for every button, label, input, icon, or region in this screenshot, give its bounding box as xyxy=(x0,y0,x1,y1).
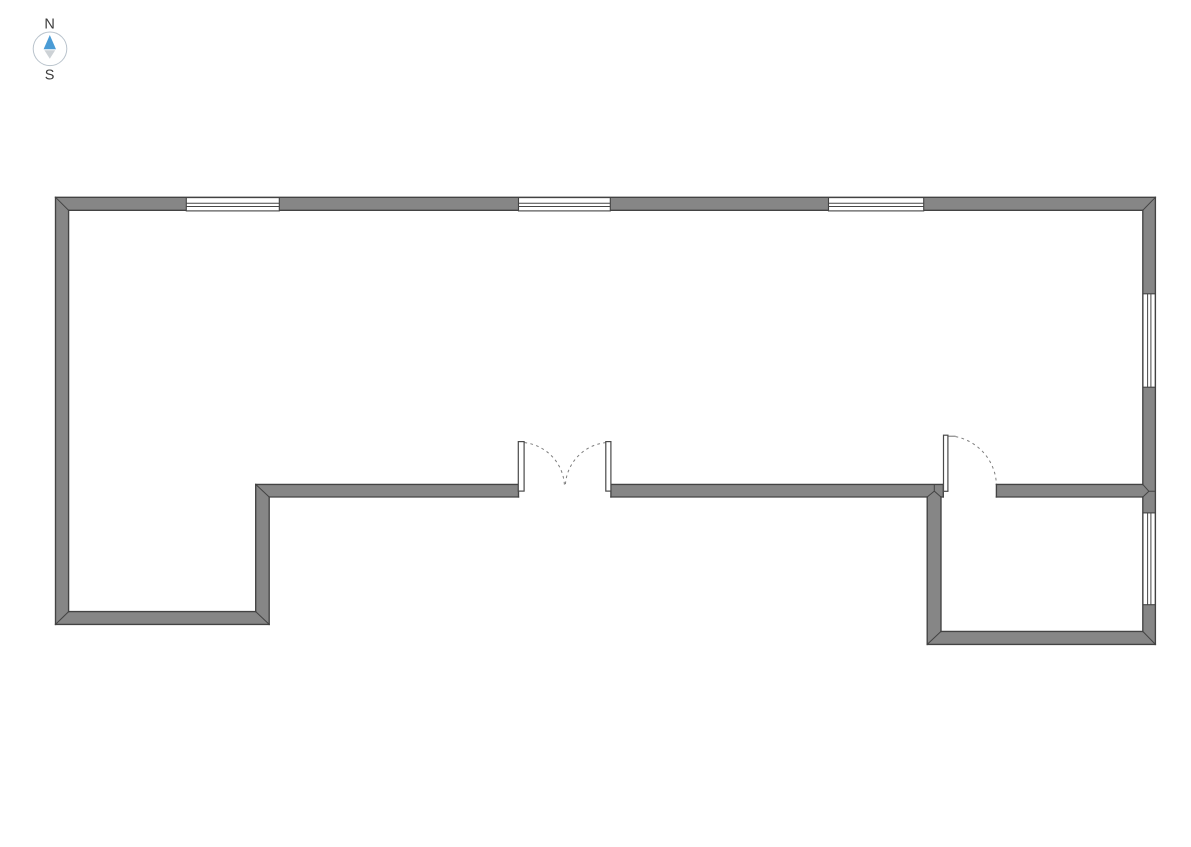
svg-text:S: S xyxy=(45,67,55,83)
svg-text:N: N xyxy=(44,17,54,33)
